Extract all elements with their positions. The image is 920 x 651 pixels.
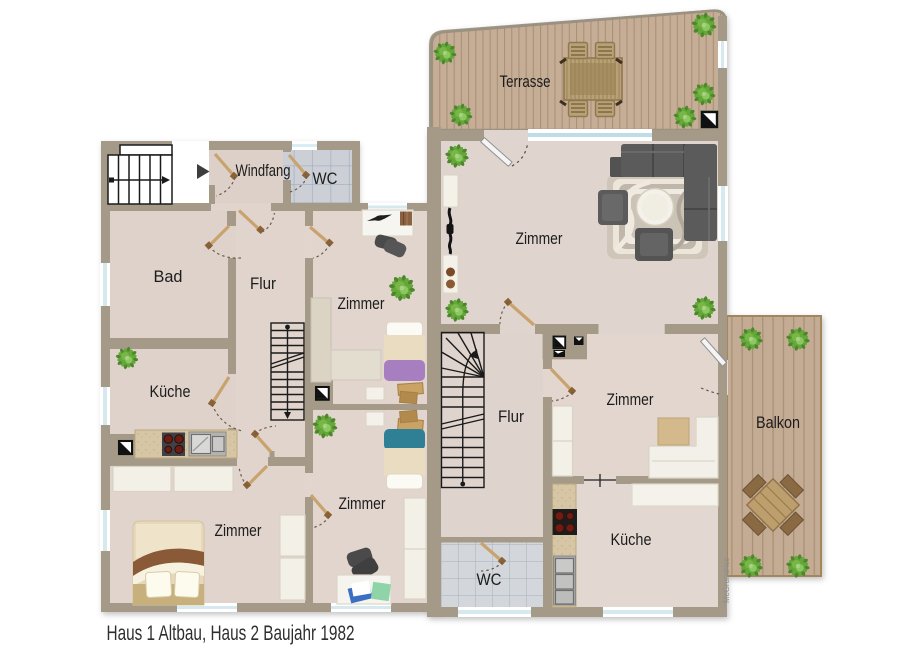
svg-text:Windfang: Windfang [236,162,291,180]
svg-text:Zimmer: Zimmer [607,391,654,409]
svg-text:Terrasse: Terrasse [500,73,551,91]
svg-text:Zimmer: Zimmer [338,295,385,313]
svg-text:WC: WC [477,571,502,589]
svg-text:Haus 1 Altbau, Haus 2 Baujahr: Haus 1 Altbau, Haus 2 Baujahr 1982 [107,622,355,645]
svg-text:Flur: Flur [498,408,524,426]
svg-text:Zimmer: Zimmer [339,495,386,513]
svg-text:Küche: Küche [150,383,191,401]
svg-text:Flur: Flur [250,275,276,293]
svg-text:Bad: Bad [154,268,183,286]
svg-text:Balkon: Balkon [756,414,800,432]
svg-text:Küche: Küche [611,531,652,549]
svg-text:Zimmer: Zimmer [516,230,563,248]
svg-text:McGrundriss: McGrundriss [722,558,731,603]
svg-text:WC: WC [313,170,338,188]
svg-text:Zimmer: Zimmer [215,522,262,540]
